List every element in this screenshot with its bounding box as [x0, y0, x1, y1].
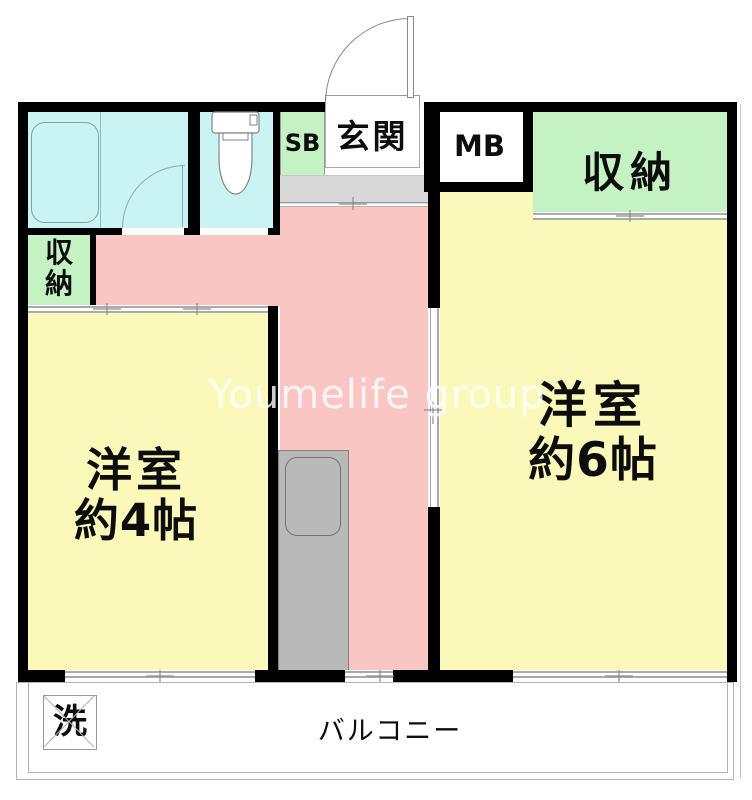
wall-top-right	[424, 102, 737, 112]
bathroom-door-leaf	[182, 165, 183, 227]
west-room-4-label-line2: 約4帖	[16, 496, 256, 546]
building-right-edge-line	[740, 104, 741, 778]
wall-westroom-kitchen	[268, 306, 278, 682]
wall-hall-room-lower	[428, 507, 440, 682]
storage-small-label: 収納	[42, 237, 76, 299]
floor-plan: SB 洗	[0, 0, 752, 800]
west-room-4-label: 洋室 約4帖	[16, 445, 256, 546]
west-room-4-label-line1: 洋室	[16, 445, 256, 496]
bathroom-divider-line	[100, 112, 101, 228]
entrance-door-leaf	[407, 16, 414, 98]
entrance-door-arc	[325, 18, 410, 103]
sliding-door-storage-main	[533, 212, 727, 220]
shoe-box-label: SB	[285, 130, 321, 156]
entrance-step-edge-line-2	[280, 206, 430, 207]
wall-storage-small-right	[90, 228, 96, 306]
room-toilet	[200, 112, 273, 228]
window-hallway	[345, 670, 393, 682]
hallway-kitchen-strip	[96, 235, 428, 306]
meter-box-label-wrap: MB	[436, 112, 523, 182]
entrance-label: 玄関	[337, 119, 409, 155]
wall-mb-storage	[523, 102, 533, 192]
storage-main-label: 収納	[533, 150, 727, 196]
hallway-kitchen-upper	[280, 207, 428, 235]
toilet-door-opening	[200, 228, 268, 235]
shoe-box: SB	[280, 110, 325, 177]
washing-machine-box: 洗	[43, 695, 97, 750]
washing-machine-label: 洗	[53, 704, 87, 741]
entrance-step-edge-line-1	[280, 202, 430, 203]
window-west-room-6	[513, 670, 727, 682]
bathtub	[31, 122, 99, 223]
wall-top-left	[18, 102, 325, 112]
wall-bath-toilet	[188, 112, 200, 228]
west-room-6-label-line2: 約6帖	[473, 434, 713, 487]
entrance-step	[280, 175, 430, 204]
kitchen-sink	[285, 457, 341, 536]
bathroom-door-opening	[122, 228, 184, 235]
wall-right	[727, 102, 737, 682]
wall-left	[18, 102, 28, 682]
meter-box-label: MB	[454, 131, 505, 163]
sliding-door-west-room-4	[28, 305, 268, 313]
watermark: Youmelife group	[157, 372, 597, 418]
window-west-room-4	[65, 670, 255, 682]
wall-mb-bottom	[424, 182, 533, 192]
entrance-label-box: 玄関	[325, 107, 420, 168]
balcony-label: バルコニー	[290, 717, 490, 747]
wall-toilet-right	[273, 112, 280, 235]
